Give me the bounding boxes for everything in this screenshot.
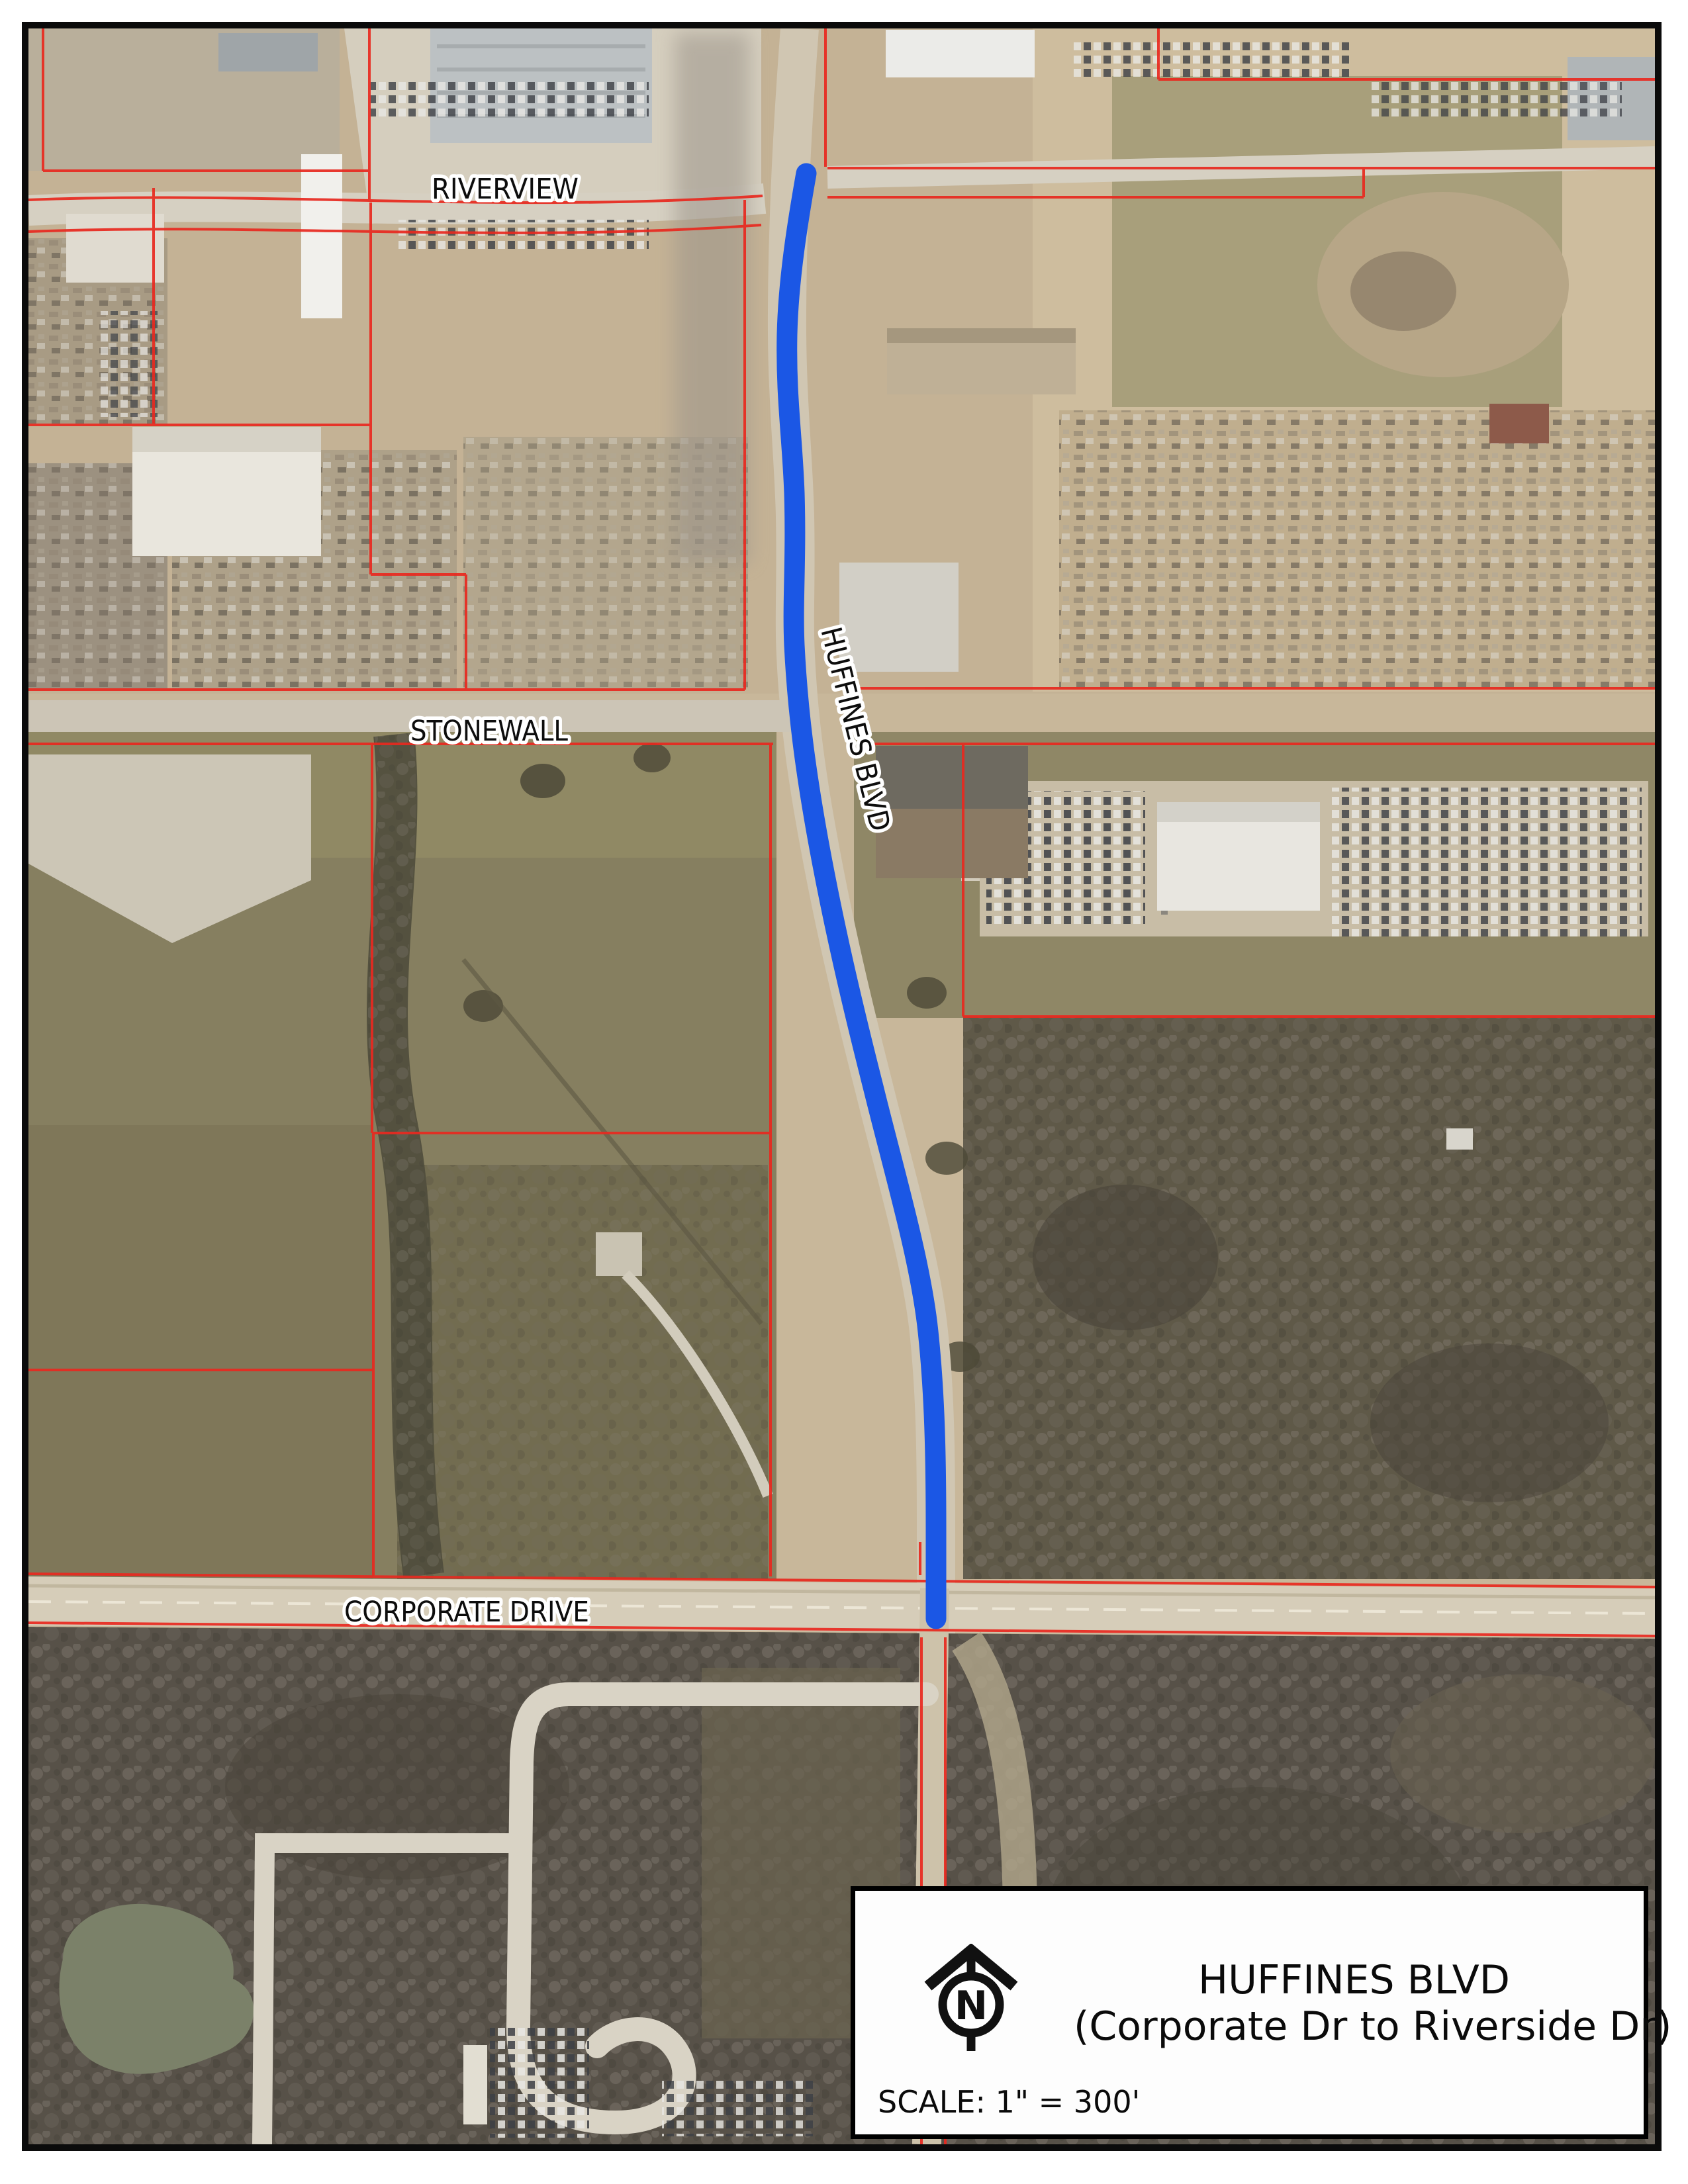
street-label-stonewall: STONEWALL: [410, 715, 568, 748]
title-block: N HUFFINES BLVD (Corporate Dr to Riversi…: [851, 1886, 1648, 2139]
svg-text:N: N: [955, 1983, 988, 2029]
scale-label: SCALE: 1" = 300': [878, 2084, 1140, 2120]
street-label-corporate-drive: CORPORATE DRIVE: [344, 1596, 589, 1629]
title-text: HUFFINES BLVD (Corporate Dr to Riverside…: [1074, 1957, 1634, 2050]
street-label-riverview: RIVERVIEW: [432, 173, 579, 206]
aerial-basemap: RIVERVIEW STONEWALL CORPORATE DRIVE HUFF…: [28, 28, 1655, 2144]
north-arrow-icon: N: [915, 1944, 1027, 2056]
map-frame: RIVERVIEW STONEWALL CORPORATE DRIVE HUFF…: [22, 22, 1662, 2151]
map-subtitle: (Corporate Dr to Riverside Dr): [1074, 2003, 1634, 2050]
map-exhibit-page: RIVERVIEW STONEWALL CORPORATE DRIVE HUFF…: [0, 0, 1688, 2184]
map-title: HUFFINES BLVD: [1074, 1957, 1634, 2003]
